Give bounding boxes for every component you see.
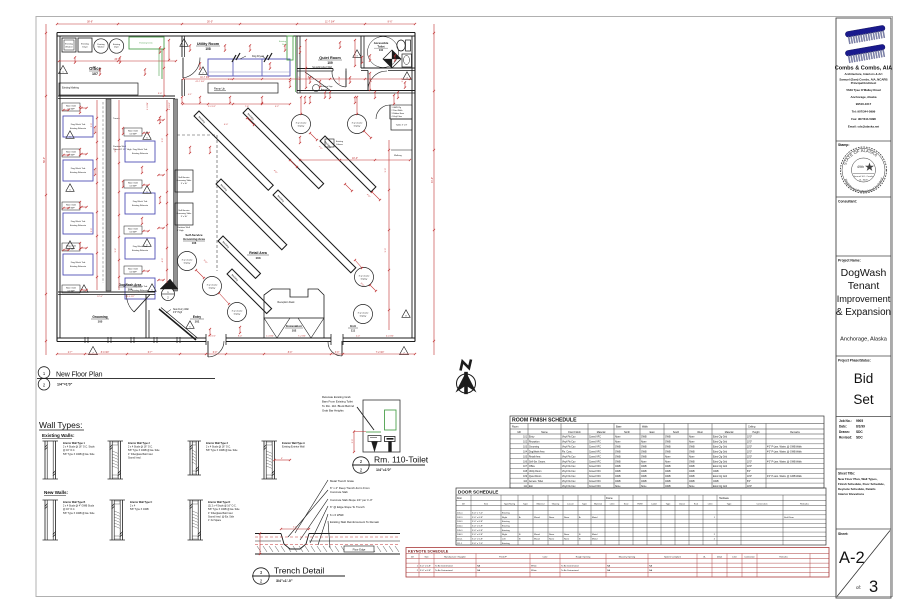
- svg-text:Ceiling: Ceiling: [748, 426, 756, 429]
- svg-text:10'0": 10'0": [747, 447, 752, 449]
- svg-text:DogWash Area: DogWash Area: [119, 283, 142, 287]
- svg-text:SDC: SDC: [856, 436, 863, 440]
- svg-text:Sheet Title:: Sheet Title:: [838, 472, 855, 476]
- svg-text:Coved VFC: Coved VFC: [589, 447, 601, 449]
- svg-text:Date:: Date:: [839, 425, 847, 429]
- svg-text:None: None: [641, 442, 647, 444]
- svg-text:None: None: [615, 442, 621, 444]
- svg-text:111-1: 111-1: [457, 543, 463, 545]
- svg-text:2 x 4 Studs @ 16" O.C. Studs: 2 x 4 Studs @ 16" O.C. Studs: [63, 446, 95, 449]
- svg-text:GWB: GWB: [689, 451, 695, 453]
- svg-text:5/8" Type X GWB: 5/8" Type X GWB: [130, 508, 149, 511]
- svg-text:4'-0": 4'-0": [162, 258, 164, 263]
- svg-text:None: None: [641, 461, 647, 463]
- svg-text:Existing: Existing: [279, 40, 286, 43]
- svg-text:Color: Color: [543, 555, 548, 558]
- svg-text:Quiet Room: Quiet Room: [529, 475, 541, 478]
- svg-text:GWB: GWB: [615, 447, 621, 449]
- svg-text:103-1: 103-1: [457, 521, 463, 523]
- svg-text:Existing Marking: Existing Marking: [62, 87, 80, 90]
- svg-text:4" Fiberglass Batt Insul.: 4" Fiberglass Batt Insul.: [208, 512, 234, 515]
- svg-text:Interior Wall Type C: Interior Wall Type C: [130, 501, 152, 504]
- svg-text:GWB: GWB: [689, 471, 695, 473]
- svg-text:4'0" P-Lam. Wains. @ GWB Walls: 4'0" P-Lam. Wains. @ GWB Walls: [767, 476, 803, 478]
- svg-text:Vinyl Fls Cov.: Vinyl Fls Cov.: [562, 442, 576, 444]
- svg-text:Display: Display: [361, 279, 368, 281]
- svg-text:109: 109: [327, 61, 333, 65]
- svg-text:1 GWB Clg: 1 GWB Clg: [392, 107, 401, 109]
- svg-text:110-1: 110-1: [457, 538, 463, 540]
- svg-text:8'-0": 8'-0": [288, 352, 293, 354]
- svg-text:Entry: Entry: [529, 436, 535, 439]
- svg-text:103: 103: [255, 256, 260, 260]
- svg-text:108: 108: [205, 47, 211, 51]
- svg-text:10'0": 10'0": [747, 486, 752, 488]
- svg-text:(2) 2 x 4 Studs @ 16" O.C.: (2) 2 x 4 Studs @ 16" O.C.: [208, 505, 237, 508]
- svg-text:Water Outlet: Water Outlet: [128, 129, 139, 132]
- svg-text:West: West: [697, 431, 703, 434]
- svg-text:4" Fiberglass Batt Insul.: 4" Fiberglass Batt Insul.: [128, 453, 154, 456]
- svg-text:Left: Left: [502, 537, 506, 540]
- svg-text:Sound Insul.: Sound Insul.: [128, 456, 142, 459]
- svg-text:Drawn:: Drawn:: [839, 430, 850, 434]
- svg-text:Type/Swing: Type/Swing: [504, 503, 516, 505]
- svg-text:3'-0" x 6'-8": 3'-0" x 6'-8": [472, 534, 483, 536]
- svg-text:Excavation: Excavation: [286, 324, 302, 328]
- svg-text:Grooming: Grooming: [92, 315, 107, 319]
- svg-text:GWB: GWB: [641, 476, 647, 478]
- svg-text:Metal: Metal: [592, 516, 598, 519]
- svg-text:Hardware: Hardware: [719, 497, 730, 500]
- svg-text:41'-7 3/4": 41'-7 3/4": [195, 81, 204, 83]
- svg-text:Coved VFC: Coved VFC: [589, 486, 601, 488]
- svg-text:Dog Wash Tub: Dog Wash Tub: [133, 149, 148, 151]
- svg-text:@ 16" O.C.: @ 16" O.C.: [63, 449, 76, 452]
- svg-text:Water Outlet: Water Outlet: [66, 203, 77, 206]
- svg-text:8' High: 8' High: [177, 230, 185, 232]
- svg-text:111: 111: [351, 329, 356, 333]
- svg-text:3'-6" AFF: 3'-6" AFF: [129, 230, 137, 233]
- svg-text:Type: Type: [523, 503, 529, 505]
- svg-text:Room: Room: [512, 426, 518, 429]
- svg-text:41'-7 3/4": 41'-7 3/4": [200, 77, 210, 79]
- svg-text:GWB: GWB: [615, 451, 621, 453]
- svg-text:Office: Office: [529, 466, 536, 468]
- svg-text:Coved VFC: Coved VFC: [589, 437, 601, 439]
- svg-text:1'-0 3/4": 1'-0 3/4": [147, 102, 149, 110]
- svg-text:& Expansion: & Expansion: [836, 307, 891, 318]
- svg-text:GWB: GWB: [641, 451, 647, 453]
- svg-text:GWB: GWB: [615, 471, 621, 473]
- svg-text:107: 107: [92, 72, 98, 76]
- svg-text:To Be Determined: To Be Determined: [561, 565, 579, 568]
- svg-text:2 x 4: 2 x 4: [130, 505, 136, 508]
- svg-text:Grooming Table: Grooming Table: [177, 212, 192, 215]
- svg-text:9'-0": 9'-0": [158, 93, 163, 95]
- svg-text:Vinyl Fls Cov.: Vinyl Fls Cov.: [562, 471, 576, 473]
- svg-text:GWB: GWB: [689, 476, 695, 478]
- svg-text:3' φ Circular: 3' φ Circular: [232, 311, 243, 313]
- svg-text:6" @ Edge-Slope To Trench: 6" @ Edge-Slope To Trench: [330, 505, 365, 509]
- svg-text:Seal: Seal: [624, 503, 629, 505]
- svg-text:3' x 10': 3' x 10': [181, 216, 188, 218]
- svg-text:Grab Bar Heights: Grab Bar Heights: [322, 409, 344, 413]
- svg-text:Display: Display: [354, 126, 361, 128]
- svg-text:Limit: Limit: [708, 502, 713, 505]
- svg-text:Type: Type: [582, 503, 588, 505]
- svg-text:GWB: GWB: [689, 461, 695, 463]
- svg-text:GWB: GWB: [615, 456, 621, 458]
- svg-text:Ramp Up: Ramp Up: [214, 87, 226, 91]
- svg-text:5'-2": 5'-2": [275, 106, 280, 108]
- svg-text:Grooming Area: Grooming Area: [183, 237, 205, 241]
- svg-text:4'-0": 4'-0": [224, 124, 229, 126]
- svg-text:Height: Height: [753, 431, 760, 434]
- svg-text:Finish Schedule, Door Schedule: Finish Schedule, Door Schedule,: [838, 482, 885, 486]
- svg-text:GWB: GWB: [665, 471, 671, 473]
- svg-text:99516-1617: 99516-1617: [856, 102, 872, 106]
- svg-text:Email: sds@alaska.net: Email: sds@alaska.net: [848, 125, 879, 129]
- svg-text:Bars From Existing Toilet: Bars From Existing Toilet: [322, 400, 353, 404]
- svg-text:Vinyl Fls Cov.: Vinyl Fls Cov.: [562, 456, 576, 458]
- svg-text:Existing Walls:: Existing Walls:: [42, 433, 75, 438]
- svg-text:Dog Wash Tub: Dog Wash Tub: [71, 262, 86, 264]
- svg-text:New Furry Wall: New Furry Wall: [173, 308, 189, 311]
- svg-text:GWB: GWB: [641, 456, 647, 458]
- svg-text:Staff Door: Staff Door: [784, 516, 794, 519]
- svg-text:Dog Wash Tub: Dog Wash Tub: [71, 124, 86, 126]
- svg-text:To Be Determined: To Be Determined: [561, 569, 579, 572]
- svg-text:GWB: GWB: [665, 442, 671, 444]
- svg-text:3'-1": 3'-1": [371, 78, 373, 83]
- svg-text:Reception Desk: Reception Desk: [278, 301, 296, 304]
- svg-text:Vinyl Fls Cov.: Vinyl Fls Cov.: [562, 437, 576, 439]
- svg-text:Type: Type: [666, 503, 672, 505]
- svg-text:Existing: Existing: [502, 529, 510, 532]
- svg-text:3' φ Circular: 3' φ Circular: [296, 123, 307, 125]
- svg-text:None: None: [665, 461, 671, 463]
- svg-text:3'-0" x 6'-8": 3'-0" x 6'-8": [472, 538, 483, 540]
- svg-text:Stamp:: Stamp:: [838, 143, 850, 147]
- svg-text:None: None: [665, 456, 671, 458]
- svg-text:Coved VFC: Coved VFC: [589, 471, 601, 473]
- svg-text:Exist Clg Grid: Exist Clg Grid: [713, 441, 728, 444]
- svg-text:Exist Clg Grid: Exist Clg Grid: [713, 460, 728, 463]
- svg-text:NA: NA: [477, 569, 481, 572]
- svg-text:Quiet Room: Quiet Room: [319, 56, 341, 60]
- svg-text:Office: Office: [89, 66, 102, 71]
- svg-text:3'-0" x 7'-0": 3'-0" x 7'-0": [472, 543, 483, 545]
- svg-text:East: East: [650, 431, 655, 434]
- svg-text:New Floor Plan, Wall Types,: New Floor Plan, Wall Types,: [838, 477, 878, 481]
- svg-text:Sheet:: Sheet:: [838, 532, 848, 536]
- svg-text:Interior Wall Type B: Interior Wall Type B: [63, 501, 85, 504]
- svg-text:Bid: Bid: [854, 371, 874, 386]
- svg-text:3'-6" AFF: 3'-6" AFF: [129, 132, 137, 135]
- svg-text:3'-0": 3'-0": [91, 228, 93, 233]
- svg-text:Exist Clg Grid: Exist Clg Grid: [713, 446, 728, 449]
- svg-text:Metal: Metal: [592, 537, 598, 540]
- svg-text:Toilet: Toilet: [377, 45, 384, 49]
- svg-text:Material: Material: [537, 502, 545, 505]
- svg-text:8'-0": 8'-0": [228, 79, 233, 81]
- svg-text:GWB: GWB: [689, 447, 695, 449]
- svg-text:Coved VFC: Coved VFC: [589, 461, 601, 463]
- svg-text:HDW: HDW: [637, 503, 643, 505]
- svg-text:Project Phase/Status:: Project Phase/Status:: [838, 359, 871, 363]
- svg-text:Self-Service: Self-Service: [178, 176, 190, 179]
- svg-text:2'-0": 2'-0": [356, 336, 361, 338]
- svg-text:8'-6": 8'-6": [388, 21, 393, 24]
- svg-text:Job No.:: Job No.:: [839, 419, 852, 423]
- svg-text:26'-0": 26'-0": [207, 21, 213, 24]
- svg-text:Connection: Connection: [744, 555, 755, 558]
- svg-text:None: None: [689, 456, 695, 458]
- svg-text:of:: of:: [856, 585, 861, 590]
- svg-text:GWB: GWB: [689, 466, 695, 468]
- svg-text:Set: Set: [853, 392, 874, 407]
- svg-text:Existing: Existing: [502, 512, 510, 515]
- svg-text:5/8" Type X GWB @ Ea. Side: 5/8" Type X GWB @ Ea. Side: [208, 508, 240, 511]
- svg-text:8'0": 8'0": [747, 481, 751, 483]
- svg-text:2 x 4 Studs @ 16" O.C.: 2 x 4 Studs @ 16" O.C.: [128, 446, 153, 449]
- svg-text:5/8" Type X GWB @ Ea. Side: 5/8" Type X GWB @ Ea. Side: [63, 453, 95, 456]
- svg-text:South: South: [673, 431, 680, 434]
- svg-text:10'0": 10'0": [747, 451, 752, 453]
- svg-text:Principal/Architect: Principal/Architect: [851, 81, 877, 85]
- svg-text:DOOR SCHEDULE: DOOR SCHEDULE: [458, 490, 498, 495]
- svg-text:New Walls:: New Walls:: [44, 490, 69, 495]
- svg-text:Utility Room: Utility Room: [197, 42, 220, 46]
- svg-text:Exist Clg Grid: Exist Clg Grid: [713, 436, 728, 439]
- svg-text:3'-0": 3'-0": [91, 123, 93, 128]
- svg-text:Right: Right: [502, 516, 507, 519]
- svg-text:Existing: Existing: [502, 520, 510, 523]
- svg-text:6'-7": 6'-7": [148, 352, 153, 354]
- svg-text:3' φ Circular: 3' φ Circular: [207, 285, 218, 287]
- svg-text:GWB: GWB: [665, 466, 671, 468]
- svg-text:104: 104: [128, 288, 133, 292]
- svg-text:Vinyl Fls Cov.: Vinyl Fls Cov.: [562, 476, 576, 478]
- svg-text:GWB: GWB: [713, 481, 719, 483]
- svg-text:Remarks: Remarks: [779, 555, 787, 558]
- svg-text:SDC: SDC: [856, 430, 863, 434]
- svg-text:NA: NA: [649, 565, 653, 568]
- svg-text:Dog Wash Tub: Dog Wash Tub: [71, 168, 86, 170]
- svg-text:3'-0" x 6'-8": 3'-0" x 6'-8": [472, 526, 483, 528]
- svg-text:3'-6" AFF: 3'-6" AFF: [129, 184, 137, 187]
- svg-text:10'-0": 10'-0": [352, 157, 358, 160]
- svg-text:Retail Area: Retail Area: [249, 251, 267, 255]
- svg-text:Display: Display: [360, 316, 367, 318]
- svg-text:Name: Name: [541, 431, 548, 434]
- svg-text:10'0": 10'0": [747, 466, 752, 468]
- svg-text:Floor Finish: Floor Finish: [568, 431, 581, 434]
- svg-text:3'-0" x 6'-8": 3'-0" x 6'-8": [420, 570, 431, 572]
- svg-text:Vinyl Fls Cov.: Vinyl Fls Cov.: [562, 466, 576, 468]
- svg-text:GWB: GWB: [615, 466, 621, 468]
- svg-text:GWB: GWB: [641, 471, 647, 473]
- svg-text:3 Rubber Base: 3 Rubber Base: [392, 112, 405, 115]
- svg-text:Reception: Reception: [529, 441, 540, 444]
- svg-text:Existing Slab Reinforcement To: Existing Slab Reinforcement To Remain: [330, 520, 380, 524]
- svg-text:North: North: [624, 431, 631, 434]
- svg-text:Relocate Existing Grab: Relocate Existing Grab: [322, 395, 351, 399]
- svg-text:Grooming Table: Grooming Table: [177, 179, 192, 182]
- svg-text:101: 101: [195, 320, 200, 324]
- svg-text:Concrete Slab: Concrete Slab: [330, 490, 348, 494]
- svg-text:GWB: GWB: [713, 471, 719, 473]
- svg-text:Water Outlet: Water Outlet: [66, 150, 77, 153]
- svg-text:Vinyl Fls Cov.: Vinyl Fls Cov.: [562, 481, 576, 483]
- svg-text:3'-0" x 6'-8": 3'-0" x 6'-8": [420, 566, 431, 568]
- svg-text:Remarks: Remarks: [790, 431, 800, 434]
- svg-text:@ 16" O.C.: @ 16" O.C.: [63, 508, 76, 511]
- svg-text:Existing Relocate: Existing Relocate: [70, 224, 87, 227]
- svg-text:GWB: GWB: [665, 476, 671, 478]
- svg-text:Existing: Existing: [65, 43, 73, 46]
- svg-text:Trench: Trench: [113, 117, 121, 120]
- svg-text:Vinyl Fls Cov.: Vinyl Fls Cov.: [562, 447, 576, 449]
- svg-text:1" Air Space: 1" Air Space: [208, 519, 222, 522]
- svg-text:Connection: Connection: [756, 502, 768, 505]
- svg-text:None: None: [549, 538, 555, 540]
- svg-text:10'0": 10'0": [747, 442, 752, 444]
- svg-text:101-1: 101-1: [457, 513, 463, 515]
- svg-text:A-2: A-2: [839, 549, 865, 567]
- svg-text:Column: Column: [336, 144, 343, 146]
- svg-text:Material: Material: [594, 502, 602, 505]
- svg-text:To Be Determined: To Be Determined: [435, 569, 453, 572]
- svg-text:3'-2 1/2": 3'-2 1/2": [208, 106, 216, 108]
- svg-text:GWB: GWB: [665, 486, 671, 488]
- svg-text:3'-0" x 6'-8": 3'-0" x 6'-8": [472, 517, 483, 519]
- svg-text:Combs & Combs, AIA: Combs & Combs, AIA: [835, 66, 893, 72]
- svg-text:Masonry Opening: Masonry Opening: [619, 555, 636, 558]
- svg-text:3'-0": 3'-0": [352, 439, 354, 444]
- svg-text:GWB: GWB: [641, 481, 647, 483]
- svg-text:Wood: Wood: [534, 534, 540, 536]
- svg-text:DogWash: DogWash: [841, 267, 887, 279]
- svg-text:Wall Types:: Wall Types:: [39, 420, 82, 430]
- svg-text:Table 3' x 8': Table 3' x 8': [396, 125, 408, 127]
- svg-text:Display: Display: [209, 288, 216, 290]
- svg-text:3' φ Circular: 3' φ Circular: [352, 123, 363, 125]
- svg-text:Display: Display: [184, 263, 191, 265]
- svg-text:GWB: GWB: [615, 481, 621, 483]
- svg-text:None: None: [615, 486, 621, 488]
- svg-text:5'-0": 5'-0": [385, 168, 387, 173]
- svg-text:Base: Base: [616, 426, 622, 429]
- svg-text:2'-8": 2'-8": [402, 78, 404, 83]
- svg-text:2'-7": 2'-7": [68, 352, 73, 354]
- svg-text:5/8" Type X GWB @ Ea. Side: 5/8" Type X GWB @ Ea. Side: [128, 449, 160, 452]
- svg-text:106: 106: [192, 241, 197, 245]
- svg-text:Fls. Conc.: Fls. Conc.: [562, 451, 573, 453]
- svg-text:Dryer: Dryer: [82, 46, 88, 49]
- svg-text:Anchorage, Alaska: Anchorage, Alaska: [840, 337, 888, 343]
- svg-text:Water Outlet: Water Outlet: [66, 104, 77, 107]
- svg-text:Washer: Washer: [65, 46, 73, 49]
- svg-text:Exist Clg Grid: Exist Clg Grid: [713, 485, 728, 488]
- svg-text:11'-7 3/4": 11'-7 3/4": [325, 21, 335, 24]
- svg-text:None: None: [564, 538, 570, 540]
- svg-text:Metal: Metal: [592, 533, 598, 536]
- svg-text:Type: Type: [727, 503, 733, 505]
- svg-text:Detail: Detail: [717, 555, 723, 558]
- svg-text:4'-1": 4'-1": [299, 76, 301, 81]
- svg-text:Existing Relocate: Existing Relocate: [132, 249, 149, 252]
- svg-text:Existing Relocate: Existing Relocate: [132, 152, 149, 155]
- svg-text:2 x 4 Studs @ 16" O.C.: 2 x 4 Studs @ 16" O.C.: [206, 446, 231, 449]
- svg-text:3'-0": 3'-0": [335, 352, 340, 354]
- svg-text:8'0": 8'0": [747, 471, 751, 473]
- svg-text:Self-Service: Self-Service: [178, 209, 190, 212]
- svg-text:GWB: GWB: [689, 481, 695, 483]
- svg-text:Closer: Closer: [679, 502, 686, 505]
- svg-text:Existing Sign: Existing Sign: [321, 85, 333, 88]
- svg-text:Consultant:: Consultant:: [838, 200, 857, 204]
- svg-text:Coved VFC: Coved VFC: [589, 476, 601, 478]
- svg-text:Existing Relocate: Existing Relocate: [132, 204, 149, 207]
- svg-text:3'-0" x 7'-0": 3'-0" x 7'-0": [472, 513, 483, 515]
- svg-text:5'-6": 5'-6": [115, 248, 117, 253]
- svg-text:Existing: Existing: [502, 525, 510, 528]
- svg-text:Exist Clg Grid: Exist Clg Grid: [713, 450, 728, 453]
- svg-text:Rough Opening: Rough Opening: [576, 556, 591, 558]
- svg-text:Interior Wall Type 3: Interior Wall Type 3: [206, 442, 228, 445]
- svg-text:GWB: GWB: [615, 461, 621, 463]
- svg-text:108-1: 108-1: [457, 534, 463, 536]
- svg-text:5/8" Type X GWB @ Ea. Side: 5/8" Type X GWB @ Ea. Side: [206, 449, 238, 452]
- svg-text:1'-3 3/4": 1'-3 3/4": [266, 336, 274, 338]
- svg-text:4 Vinyl Floor: 4 Vinyl Floor: [392, 115, 403, 118]
- svg-text:Access. Toilet: Access. Toilet: [529, 480, 543, 483]
- svg-text:None: None: [549, 517, 555, 519]
- svg-text:Revised:: Revised:: [839, 436, 852, 440]
- svg-text:Soundproofed Wall: Soundproofed Wall: [312, 66, 332, 69]
- svg-text:Exist Clg Grid: Exist Clg Grid: [713, 465, 728, 468]
- svg-text:Display: Display: [298, 126, 305, 128]
- svg-text:Existing: Existing: [81, 43, 89, 46]
- svg-text:2 x 4 Studs @ 4" GWB Studs: 2 x 4 Studs @ 4" GWB Studs: [63, 505, 95, 508]
- svg-text:12'-5": 12'-5": [97, 296, 103, 298]
- svg-text:Self-Sw. Groom.: Self-Sw. Groom.: [529, 460, 546, 463]
- svg-text:Trench Detail: Trench Detail: [274, 566, 324, 576]
- svg-text:3'-0" x 6'-8": 3'-0" x 6'-8": [472, 530, 483, 532]
- svg-text:Partition Wall: Partition Wall: [113, 145, 126, 148]
- svg-text:None: None: [689, 437, 695, 439]
- svg-text:Water Outlet: Water Outlet: [128, 181, 139, 184]
- svg-text:58'-0": 58'-0": [43, 157, 46, 163]
- svg-text:Keynote Schedule, Details: Keynote Schedule, Details: [838, 487, 876, 491]
- svg-text:None: None: [689, 486, 695, 488]
- svg-text:GWB: GWB: [665, 451, 671, 453]
- svg-text:Exterior Wall Type A: Exterior Wall Type A: [282, 442, 305, 445]
- svg-text:5/8" Type X GWB @ Ea. Side: 5/8" Type X GWB @ Ea. Side: [63, 512, 95, 515]
- svg-text:Interior Wall Type 2: Interior Wall Type 2: [128, 442, 150, 445]
- svg-text:3/4"=1'-0": 3/4"=1'-0": [276, 579, 293, 583]
- svg-text:Exist Clg Grid: Exist Clg Grid: [713, 455, 728, 458]
- svg-text:Interior Wall Type D: Interior Wall Type D: [208, 501, 230, 504]
- svg-text:7'-2 3/4": 7'-2 3/4": [298, 336, 306, 338]
- svg-text:Frame: Frame: [606, 497, 613, 500]
- svg-text:1/4"=1'0": 1/4"=1'0": [57, 383, 73, 387]
- svg-text:GWB: GWB: [615, 476, 621, 478]
- svg-text:GWB: GWB: [641, 466, 647, 468]
- svg-text:Remarks: Remarks: [800, 502, 810, 505]
- svg-text:9905: 9905: [856, 419, 863, 423]
